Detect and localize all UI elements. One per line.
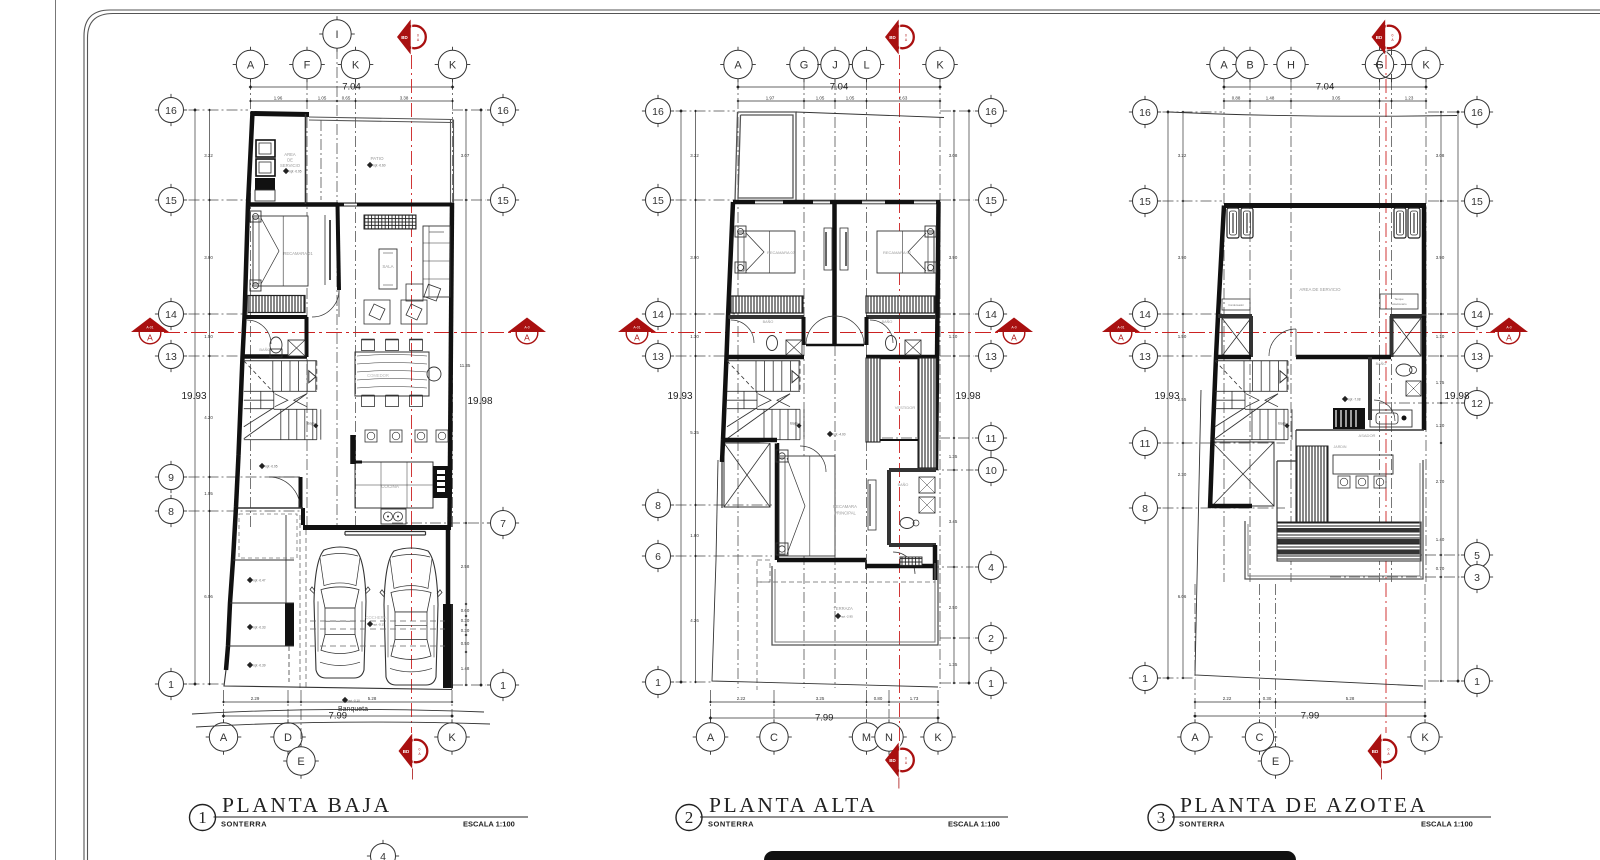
svg-text:SONTERRA: SONTERRA: [708, 820, 754, 829]
svg-text:ASADOR: ASADOR: [1359, 433, 1376, 438]
svg-text:JARDIN: JARDIN: [1334, 445, 1347, 449]
svg-text:3.08: 3.08: [949, 153, 958, 158]
svg-text:3.90: 3.90: [949, 255, 958, 260]
svg-text:A: A: [220, 732, 228, 744]
svg-text:npt -0.47: npt -0.47: [253, 578, 266, 582]
svg-text:13: 13: [1471, 351, 1483, 363]
svg-text:SONTERRA: SONTERRA: [221, 820, 267, 829]
svg-text:RECAMARA 03: RECAMARA 03: [767, 250, 796, 255]
svg-text:npt -2.95: npt -2.95: [841, 614, 853, 618]
svg-text:N: N: [885, 732, 893, 744]
svg-text:AREA: AREA: [284, 152, 296, 157]
svg-text:4.20: 4.20: [204, 415, 213, 420]
svg-text:1.35: 1.35: [949, 662, 958, 667]
svg-text:K: K: [448, 732, 456, 744]
svg-text:A: A: [1011, 333, 1017, 343]
svg-text:15: 15: [652, 195, 664, 207]
svg-text:5.25: 5.25: [690, 430, 699, 435]
svg-text:1.23: 1.23: [1405, 95, 1414, 100]
svg-text:14: 14: [1139, 309, 1151, 321]
svg-text:0.30: 0.30: [461, 618, 470, 623]
svg-text:1.30: 1.30: [690, 334, 699, 339]
svg-text:0.30: 0.30: [461, 628, 470, 633]
svg-text:A: A: [1220, 60, 1228, 72]
svg-text:2.30: 2.30: [1178, 472, 1187, 477]
svg-text:7: 7: [500, 518, 506, 530]
svg-text:10: 10: [985, 465, 997, 477]
svg-text:8: 8: [1142, 503, 1148, 515]
svg-text:0.65: 0.65: [342, 95, 351, 100]
svg-text:0.70: 0.70: [1436, 566, 1445, 571]
svg-text:COCHERA: COCHERA: [366, 615, 387, 620]
svg-text:L: L: [863, 60, 869, 72]
svg-text:Condensador: Condensador: [1228, 303, 1244, 307]
svg-text:BD: BD: [1376, 35, 1383, 40]
svg-text:BD: BD: [401, 35, 408, 40]
svg-text:E: E: [297, 756, 304, 768]
svg-text:1.48: 1.48: [1266, 95, 1275, 100]
svg-text:PLANTA BAJA: PLANTA BAJA: [222, 793, 392, 817]
svg-text:A-01: A-01: [1117, 326, 1124, 330]
svg-text:K: K: [1421, 732, 1429, 744]
svg-text:19.93: 19.93: [667, 391, 692, 402]
svg-text:ESCALA 1:100: ESCALA 1:100: [463, 820, 515, 829]
svg-text:2.58: 2.58: [461, 564, 470, 569]
svg-text:K: K: [936, 60, 944, 72]
svg-text:15: 15: [1139, 196, 1151, 208]
svg-text:1.05: 1.05: [846, 95, 855, 100]
svg-text:0.50: 0.50: [461, 641, 470, 646]
svg-text:K: K: [934, 732, 942, 744]
svg-text:3.90: 3.90: [204, 255, 213, 260]
svg-text:13: 13: [652, 351, 664, 363]
svg-text:npt -7.08: npt -7.08: [1348, 397, 1361, 401]
svg-text:VESTIDOR: VESTIDOR: [895, 405, 916, 410]
svg-text:BD: BD: [403, 749, 410, 754]
svg-text:K: K: [352, 60, 360, 72]
svg-text:A: A: [1506, 333, 1512, 343]
svg-text:A-0: A-0: [1506, 326, 1511, 330]
svg-text:npt -0.33: npt -0.33: [253, 625, 266, 629]
svg-text:11.35: 11.35: [460, 363, 471, 368]
svg-text:2.22: 2.22: [737, 696, 746, 701]
svg-text:16: 16: [497, 105, 509, 117]
svg-text:2: 2: [685, 808, 694, 827]
svg-text:14: 14: [165, 309, 177, 321]
svg-text:npt -4.00: npt -4.00: [833, 432, 846, 436]
svg-text:15: 15: [497, 195, 509, 207]
svg-text:2.70: 2.70: [1436, 479, 1445, 484]
svg-text:11: 11: [1140, 438, 1151, 450]
svg-text:5.28: 5.28: [1346, 696, 1355, 701]
svg-text:RECAMARA: RECAMARA: [833, 504, 857, 509]
svg-text:SERVICIO: SERVICIO: [280, 163, 301, 168]
svg-text:2.22: 2.22: [1223, 696, 1232, 701]
svg-text:5.28: 5.28: [368, 696, 377, 701]
svg-text:2.29: 2.29: [251, 696, 260, 701]
svg-text:SONTERRA: SONTERRA: [1179, 820, 1225, 829]
svg-text:0.30: 0.30: [1263, 696, 1272, 701]
svg-text:npt -0.95: npt -0.95: [289, 169, 302, 173]
svg-text:1.40: 1.40: [1436, 537, 1445, 542]
svg-text:A: A: [524, 333, 530, 343]
svg-text:6.06: 6.06: [1178, 594, 1187, 599]
svg-text:6.06: 6.06: [204, 594, 213, 599]
svg-text:RECAMARA 01: RECAMARA 01: [283, 251, 313, 256]
svg-text:npt -0.60: npt -0.60: [373, 163, 386, 167]
svg-text:16: 16: [1139, 107, 1151, 119]
svg-text:15: 15: [1471, 196, 1483, 208]
svg-text:1.35: 1.35: [949, 454, 958, 459]
svg-text:0: 0: [1388, 748, 1390, 752]
svg-text:11: 11: [986, 433, 997, 445]
svg-text:14: 14: [985, 309, 997, 321]
svg-text:npt -0.39: npt -0.39: [253, 663, 266, 667]
svg-text:A: A: [1191, 732, 1199, 744]
svg-text:8: 8: [655, 500, 661, 512]
svg-text:M: M: [862, 732, 871, 744]
svg-text:1.10: 1.10: [949, 334, 958, 339]
svg-text:G: G: [800, 60, 809, 72]
svg-text:H: H: [1287, 60, 1295, 72]
svg-text:3.07: 3.07: [461, 153, 470, 158]
svg-text:16: 16: [1471, 107, 1483, 119]
svg-text:RECAMARA 02: RECAMARA 02: [883, 250, 912, 255]
svg-text:1.73: 1.73: [910, 696, 919, 701]
svg-text:ESCALA 1:100: ESCALA 1:100: [1421, 820, 1473, 829]
svg-text:COCINA: COCINA: [381, 484, 400, 489]
svg-text:1: 1: [168, 679, 174, 691]
svg-text:0.80: 0.80: [874, 696, 883, 701]
svg-text:3.90: 3.90: [690, 255, 699, 260]
svg-text:1: 1: [198, 808, 207, 827]
svg-text:12: 12: [1471, 398, 1483, 410]
svg-text:1: 1: [1142, 673, 1148, 685]
svg-text:13: 13: [1139, 351, 1151, 363]
svg-text:A: A: [634, 333, 640, 343]
svg-text:4.26: 4.26: [690, 618, 699, 623]
svg-text:SALA: SALA: [382, 264, 393, 269]
svg-text:A-01: A-01: [633, 326, 640, 330]
svg-text:15: 15: [985, 195, 997, 207]
svg-text:3.22: 3.22: [1178, 153, 1187, 158]
svg-text:npt -0.10: npt -0.10: [348, 698, 360, 702]
svg-text:BD: BD: [889, 758, 896, 763]
svg-text:7.99: 7.99: [815, 713, 834, 724]
svg-text:13: 13: [165, 351, 177, 363]
svg-text:PRINCIPAL: PRINCIPAL: [834, 511, 856, 516]
svg-text:BAÑO: BAÑO: [1376, 361, 1387, 366]
svg-text:1: 1: [500, 680, 506, 692]
svg-text:I: I: [335, 29, 338, 41]
svg-text:PLANTA ALTA: PLANTA ALTA: [709, 793, 877, 817]
svg-text:1.75: 1.75: [1436, 380, 1445, 385]
svg-text:8: 8: [168, 506, 174, 518]
svg-text:A: A: [707, 732, 715, 744]
svg-text:K: K: [1422, 60, 1430, 72]
svg-text:A: A: [734, 60, 742, 72]
svg-text:5: 5: [1474, 550, 1480, 562]
svg-text:1.05: 1.05: [816, 95, 825, 100]
svg-text:3: 3: [1474, 572, 1480, 584]
svg-text:4: 4: [988, 562, 994, 574]
svg-text:0: 0: [905, 757, 907, 761]
svg-text:BAÑO: BAÑO: [882, 319, 893, 324]
svg-text:BD: BD: [889, 35, 896, 40]
svg-text:16: 16: [165, 105, 177, 117]
svg-text:2.50: 2.50: [949, 605, 958, 610]
svg-text:3.90: 3.90: [1436, 255, 1445, 260]
svg-text:13: 13: [985, 351, 997, 363]
svg-text:14: 14: [652, 309, 664, 321]
svg-text:0: 0: [1392, 34, 1394, 38]
svg-text:1.05: 1.05: [318, 95, 327, 100]
svg-text:2: 2: [988, 633, 994, 645]
svg-text:A: A: [147, 333, 153, 343]
svg-text:3.05: 3.05: [1332, 95, 1341, 100]
svg-text:0: 0: [905, 34, 907, 38]
svg-text:K: K: [449, 60, 457, 72]
svg-text:DE: DE: [287, 158, 293, 163]
svg-text:1.96: 1.96: [274, 95, 283, 100]
svg-text:3.38: 3.38: [400, 95, 409, 100]
svg-text:A-0: A-0: [1011, 326, 1016, 330]
svg-text:A: A: [1118, 333, 1124, 343]
svg-text:2.55: 2.55: [1178, 397, 1187, 402]
svg-text:BAÑO: BAÑO: [898, 482, 909, 487]
svg-text:3.22: 3.22: [204, 153, 213, 158]
svg-text:1.50: 1.50: [1178, 334, 1187, 339]
svg-text:3.08: 3.08: [1436, 153, 1445, 158]
svg-text:PATIO: PATIO: [370, 156, 384, 161]
svg-text:B: B: [1246, 60, 1253, 72]
svg-text:E: E: [1272, 756, 1279, 768]
svg-text:COMEDOR: COMEDOR: [367, 373, 389, 378]
svg-text:16: 16: [985, 106, 997, 118]
svg-text:9: 9: [168, 472, 174, 484]
svg-text:0: 0: [417, 34, 419, 38]
svg-text:1: 1: [1474, 676, 1480, 688]
svg-text:19.93: 19.93: [181, 391, 206, 402]
svg-text:4: 4: [380, 851, 386, 860]
svg-text:0.88: 0.88: [1232, 95, 1241, 100]
svg-text:npt -0.15: npt -0.15: [373, 622, 385, 626]
svg-text:AREA DE SERVICIO: AREA DE SERVICIO: [1299, 287, 1341, 292]
svg-text:Tanque: Tanque: [1394, 297, 1404, 301]
svg-text:BD: BD: [1372, 749, 1379, 754]
svg-text:16: 16: [652, 106, 664, 118]
svg-text:1: 1: [655, 677, 661, 689]
svg-text:C: C: [770, 732, 778, 744]
svg-text:C: C: [1256, 732, 1264, 744]
svg-text:7.04: 7.04: [342, 82, 361, 93]
svg-text:0: 0: [419, 748, 421, 752]
svg-text:15: 15: [165, 195, 177, 207]
svg-text:19.98: 19.98: [467, 396, 492, 407]
svg-text:3.90: 3.90: [1178, 255, 1187, 260]
svg-text:3: 3: [1157, 808, 1166, 827]
svg-text:1.05: 1.05: [204, 491, 213, 496]
svg-text:1.50: 1.50: [204, 334, 213, 339]
svg-text:1.80: 1.80: [690, 533, 699, 538]
svg-text:PLANTA DE AZOTEA: PLANTA DE AZOTEA: [1180, 793, 1428, 817]
svg-text:0.60: 0.60: [461, 608, 470, 613]
svg-text:3.45: 3.45: [949, 519, 958, 524]
svg-text:F: F: [304, 60, 311, 72]
svg-text:6: 6: [655, 551, 661, 563]
svg-text:1.10: 1.10: [1436, 334, 1445, 339]
svg-text:19.98: 19.98: [955, 391, 980, 402]
svg-text:19.93: 19.93: [1154, 391, 1179, 402]
svg-text:3.22: 3.22: [690, 153, 699, 158]
svg-text:BAÑO: BAÑO: [259, 347, 270, 352]
svg-text:1.97: 1.97: [766, 95, 775, 100]
svg-text:TERRAZA: TERRAZA: [833, 606, 853, 611]
svg-text:npt -0.95: npt -0.95: [265, 464, 278, 468]
svg-text:2.63: 2.63: [899, 95, 908, 100]
svg-text:1.20: 1.20: [1436, 423, 1445, 428]
svg-text:A-01: A-01: [146, 326, 153, 330]
svg-text:A-0: A-0: [524, 326, 529, 330]
svg-text:ESCALA 1:100: ESCALA 1:100: [948, 820, 1000, 829]
svg-text:7.04: 7.04: [830, 82, 849, 93]
svg-text:G: G: [1375, 60, 1384, 72]
svg-text:estacionario: estacionario: [1391, 302, 1407, 306]
svg-text:D: D: [284, 732, 292, 744]
svg-text:3.25: 3.25: [816, 696, 825, 701]
svg-text:1: 1: [988, 678, 994, 690]
svg-text:7.99: 7.99: [1301, 711, 1320, 722]
svg-text:J: J: [832, 60, 838, 72]
svg-text:BAÑO: BAÑO: [763, 319, 774, 324]
svg-text:1.48: 1.48: [461, 666, 470, 671]
svg-text:14: 14: [1471, 309, 1483, 321]
svg-text:19.98: 19.98: [1444, 391, 1469, 402]
svg-text:7.04: 7.04: [1316, 82, 1335, 93]
svg-text:A: A: [247, 60, 255, 72]
